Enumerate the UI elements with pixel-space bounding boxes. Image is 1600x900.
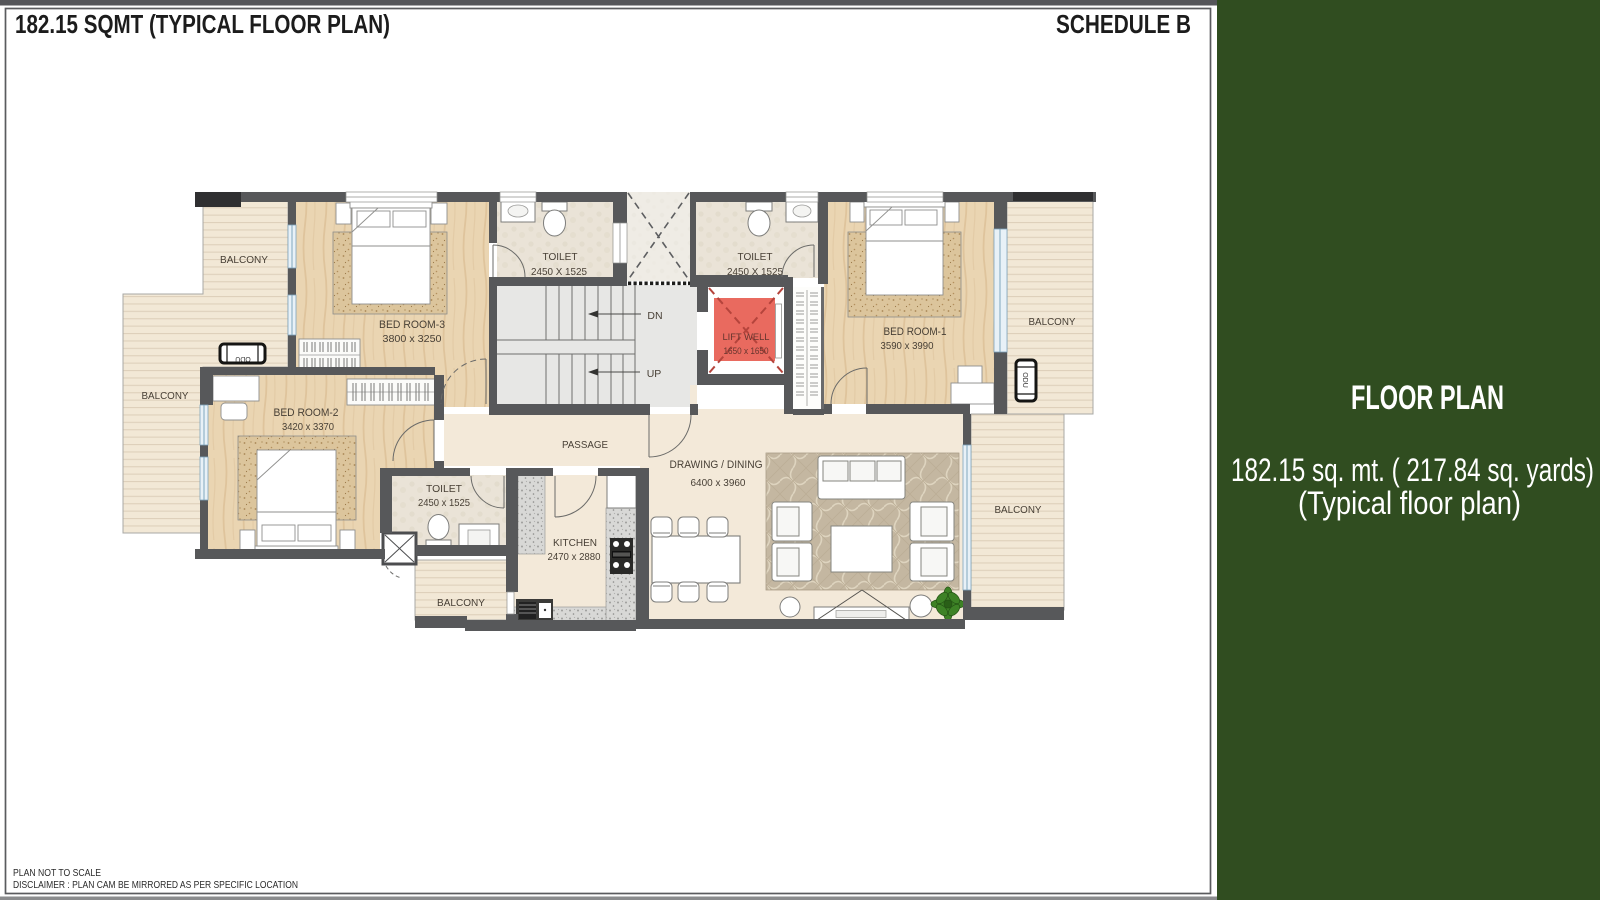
svg-text:TOILET: TOILET <box>543 251 579 263</box>
svg-text:6400 x 3960: 6400 x 3960 <box>691 477 746 489</box>
svg-text:FLOOR PLAN: FLOOR PLAN <box>1351 379 1504 417</box>
svg-text:3590 x 3990: 3590 x 3990 <box>881 340 934 352</box>
svg-text:BALCONY: BALCONY <box>995 504 1042 516</box>
svg-text:2470 x 2880: 2470 x 2880 <box>548 551 601 563</box>
svg-text:ODU: ODU <box>1021 372 1028 388</box>
svg-text:DRAWING / DINING: DRAWING / DINING <box>670 459 763 471</box>
svg-text:PASSAGE: PASSAGE <box>562 439 608 451</box>
svg-text:BALCONY: BALCONY <box>142 390 189 402</box>
svg-text:1650 x 1650: 1650 x 1650 <box>724 346 769 357</box>
svg-text:2450 X 1525: 2450 X 1525 <box>727 266 783 278</box>
svg-text:DISCLAIMER : PLAN CAM BE MIRRO: DISCLAIMER : PLAN CAM BE MIRRORED AS PER… <box>13 880 298 891</box>
svg-text:TOILET: TOILET <box>426 483 463 495</box>
svg-text:BED ROOM-2: BED ROOM-2 <box>274 407 339 419</box>
svg-text:TOILET: TOILET <box>738 251 774 263</box>
svg-text:ODU: ODU <box>235 355 251 362</box>
svg-text:PLAN NOT TO SCALE: PLAN NOT TO SCALE <box>13 868 101 879</box>
svg-text:(Typical floor plan): (Typical floor plan) <box>1298 485 1521 521</box>
svg-text:3800 x 3250: 3800 x 3250 <box>383 333 442 345</box>
svg-text:DN: DN <box>647 310 662 322</box>
svg-text:2450 X 1525: 2450 X 1525 <box>531 266 587 278</box>
svg-text:SCHEDULE B: SCHEDULE B <box>1056 9 1191 39</box>
svg-text:3420 x 3370: 3420 x 3370 <box>282 421 334 433</box>
svg-text:BALCONY: BALCONY <box>220 254 268 266</box>
svg-text:2450 x 1525: 2450 x 1525 <box>418 497 470 509</box>
svg-text:KITCHEN: KITCHEN <box>553 537 597 549</box>
svg-text:182.15 sq. mt. ( 217.84 sq. ya: 182.15 sq. mt. ( 217.84 sq. yards) <box>1231 452 1594 488</box>
svg-text:LIFT WELL: LIFT WELL <box>723 332 770 343</box>
svg-text:182.15 SQMT (TYPICAL FLOOR PLA: 182.15 SQMT (TYPICAL FLOOR PLAN) <box>15 9 390 39</box>
svg-text:BED ROOM-3: BED ROOM-3 <box>379 319 445 331</box>
svg-text:BALCONY: BALCONY <box>1029 316 1076 328</box>
svg-text:BED ROOM-1: BED ROOM-1 <box>884 326 947 338</box>
svg-text:BALCONY: BALCONY <box>437 597 485 609</box>
svg-text:UP: UP <box>647 368 662 380</box>
